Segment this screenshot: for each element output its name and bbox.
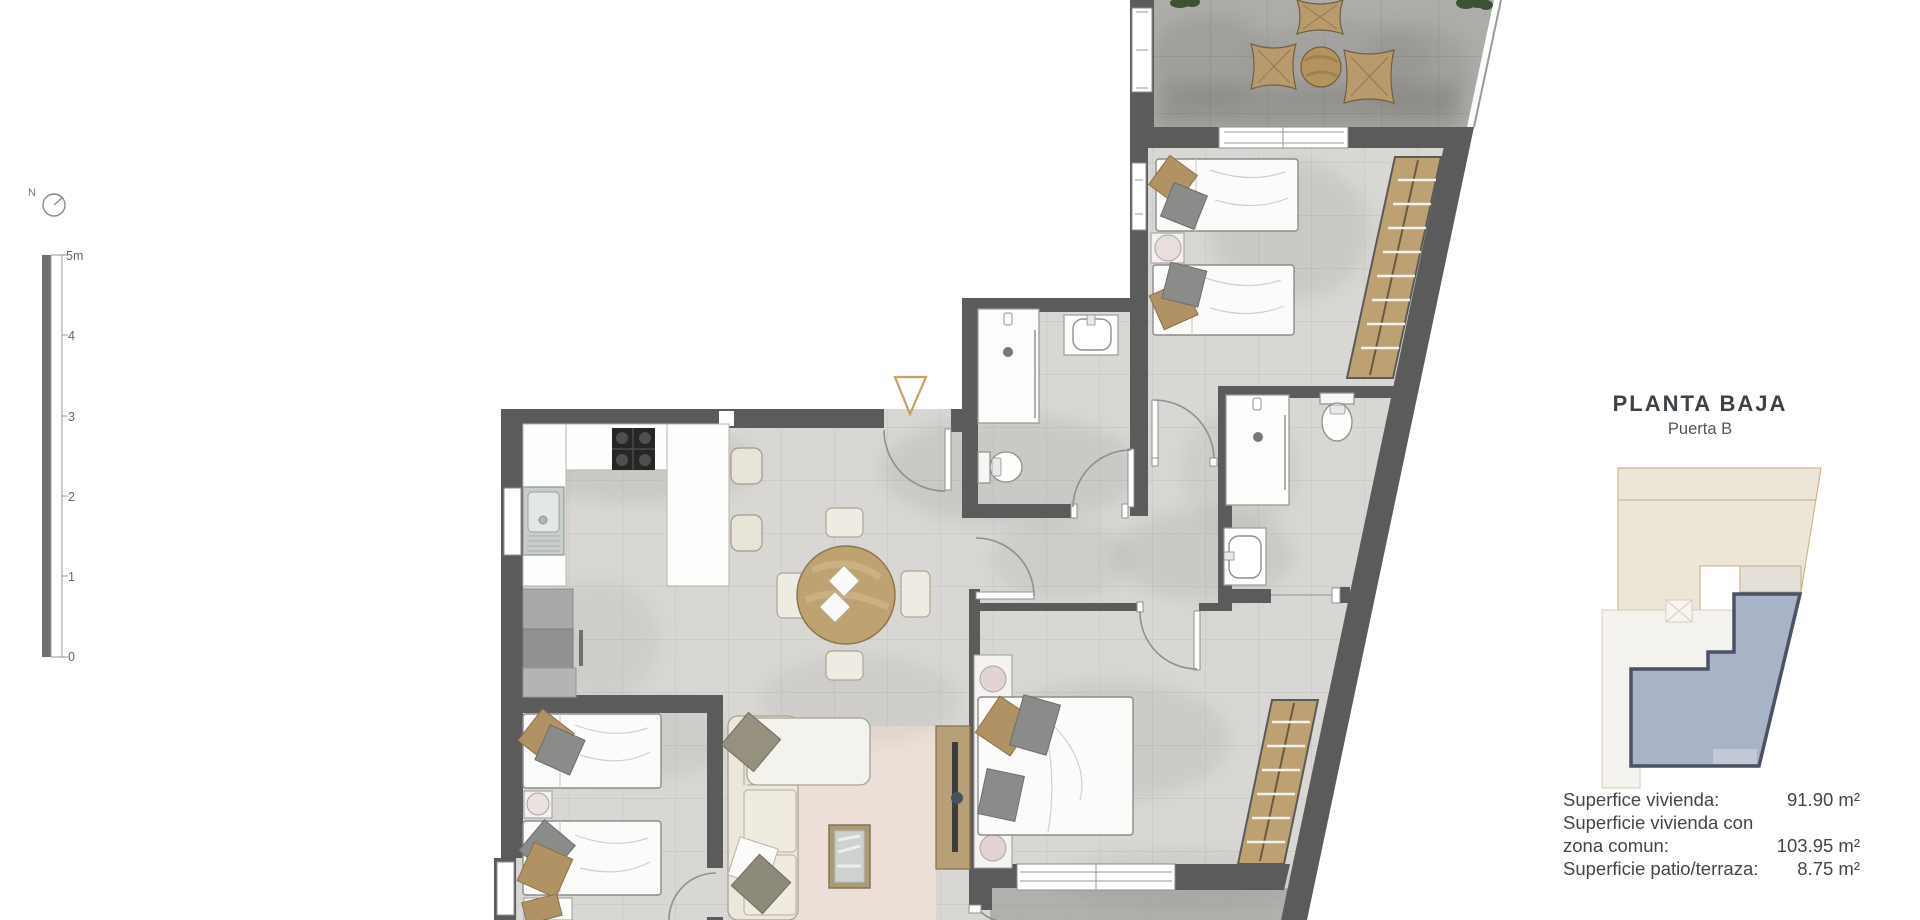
svg-text:0: 0 <box>68 650 75 664</box>
svg-text:1: 1 <box>68 570 75 584</box>
svg-text:Superficie vivienda con: Superficie vivienda con <box>1563 812 1753 833</box>
svg-text:PLANTA BAJA: PLANTA BAJA <box>1613 391 1788 416</box>
svg-text:zona comun:: zona comun: <box>1563 835 1669 856</box>
svg-text:4: 4 <box>68 329 75 343</box>
svg-text:Superfice vivienda:: Superfice vivienda: <box>1563 789 1719 810</box>
svg-text:2: 2 <box>68 490 75 504</box>
svg-text:91.90 m²: 91.90 m² <box>1787 789 1860 810</box>
svg-text:Puerta B: Puerta B <box>1668 420 1732 438</box>
svg-text:8.75 m²: 8.75 m² <box>1797 858 1860 879</box>
svg-text:5m: 5m <box>66 249 83 263</box>
svg-text:Superficie patio/terraza:: Superficie patio/terraza: <box>1563 858 1758 879</box>
svg-text:N: N <box>28 187 36 199</box>
svg-text:3: 3 <box>68 410 75 424</box>
svg-text:103.95 m²: 103.95 m² <box>1777 835 1860 856</box>
